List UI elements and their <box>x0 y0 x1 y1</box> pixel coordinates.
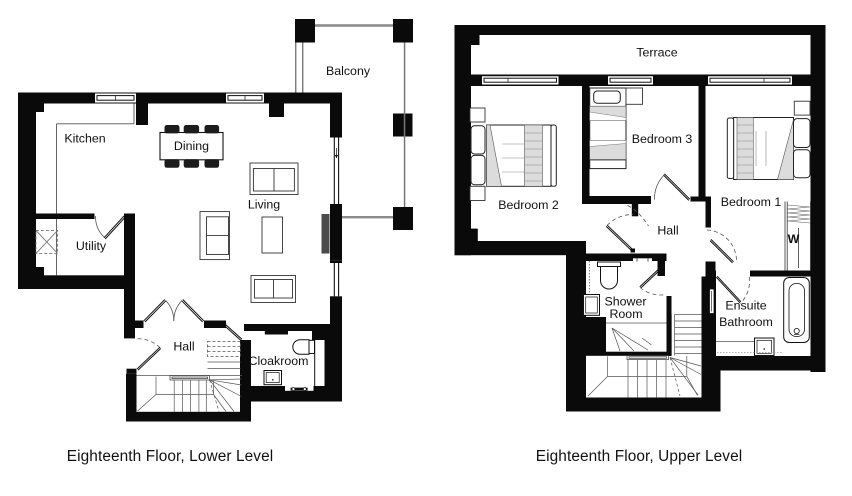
svg-text:Bedroom 2: Bedroom 2 <box>498 198 559 212</box>
svg-text:Room: Room <box>609 307 642 321</box>
svg-text:Bedroom 3: Bedroom 3 <box>632 132 693 146</box>
svg-text:Eighteenth Floor, Lower Level: Eighteenth Floor, Lower Level <box>67 448 274 465</box>
svg-text:Bedroom 1: Bedroom 1 <box>721 195 782 209</box>
svg-text:Hall: Hall <box>657 223 678 237</box>
svg-text:Living: Living <box>248 198 280 212</box>
svg-text:Ensuite: Ensuite <box>725 298 766 312</box>
svg-text:Hall: Hall <box>173 339 194 353</box>
svg-text:Terrace: Terrace <box>636 45 677 59</box>
svg-text:Kitchen: Kitchen <box>64 131 105 145</box>
svg-text:Balcony: Balcony <box>326 64 371 78</box>
svg-text:Utility: Utility <box>76 239 107 253</box>
svg-text:Dining: Dining <box>174 139 209 153</box>
svg-text:Eighteenth Floor, Upper Level: Eighteenth Floor, Upper Level <box>536 448 743 465</box>
svg-text:Bathroom: Bathroom <box>719 315 773 329</box>
svg-text:Cloakroom: Cloakroom <box>249 354 309 368</box>
svg-text:W: W <box>788 232 800 246</box>
